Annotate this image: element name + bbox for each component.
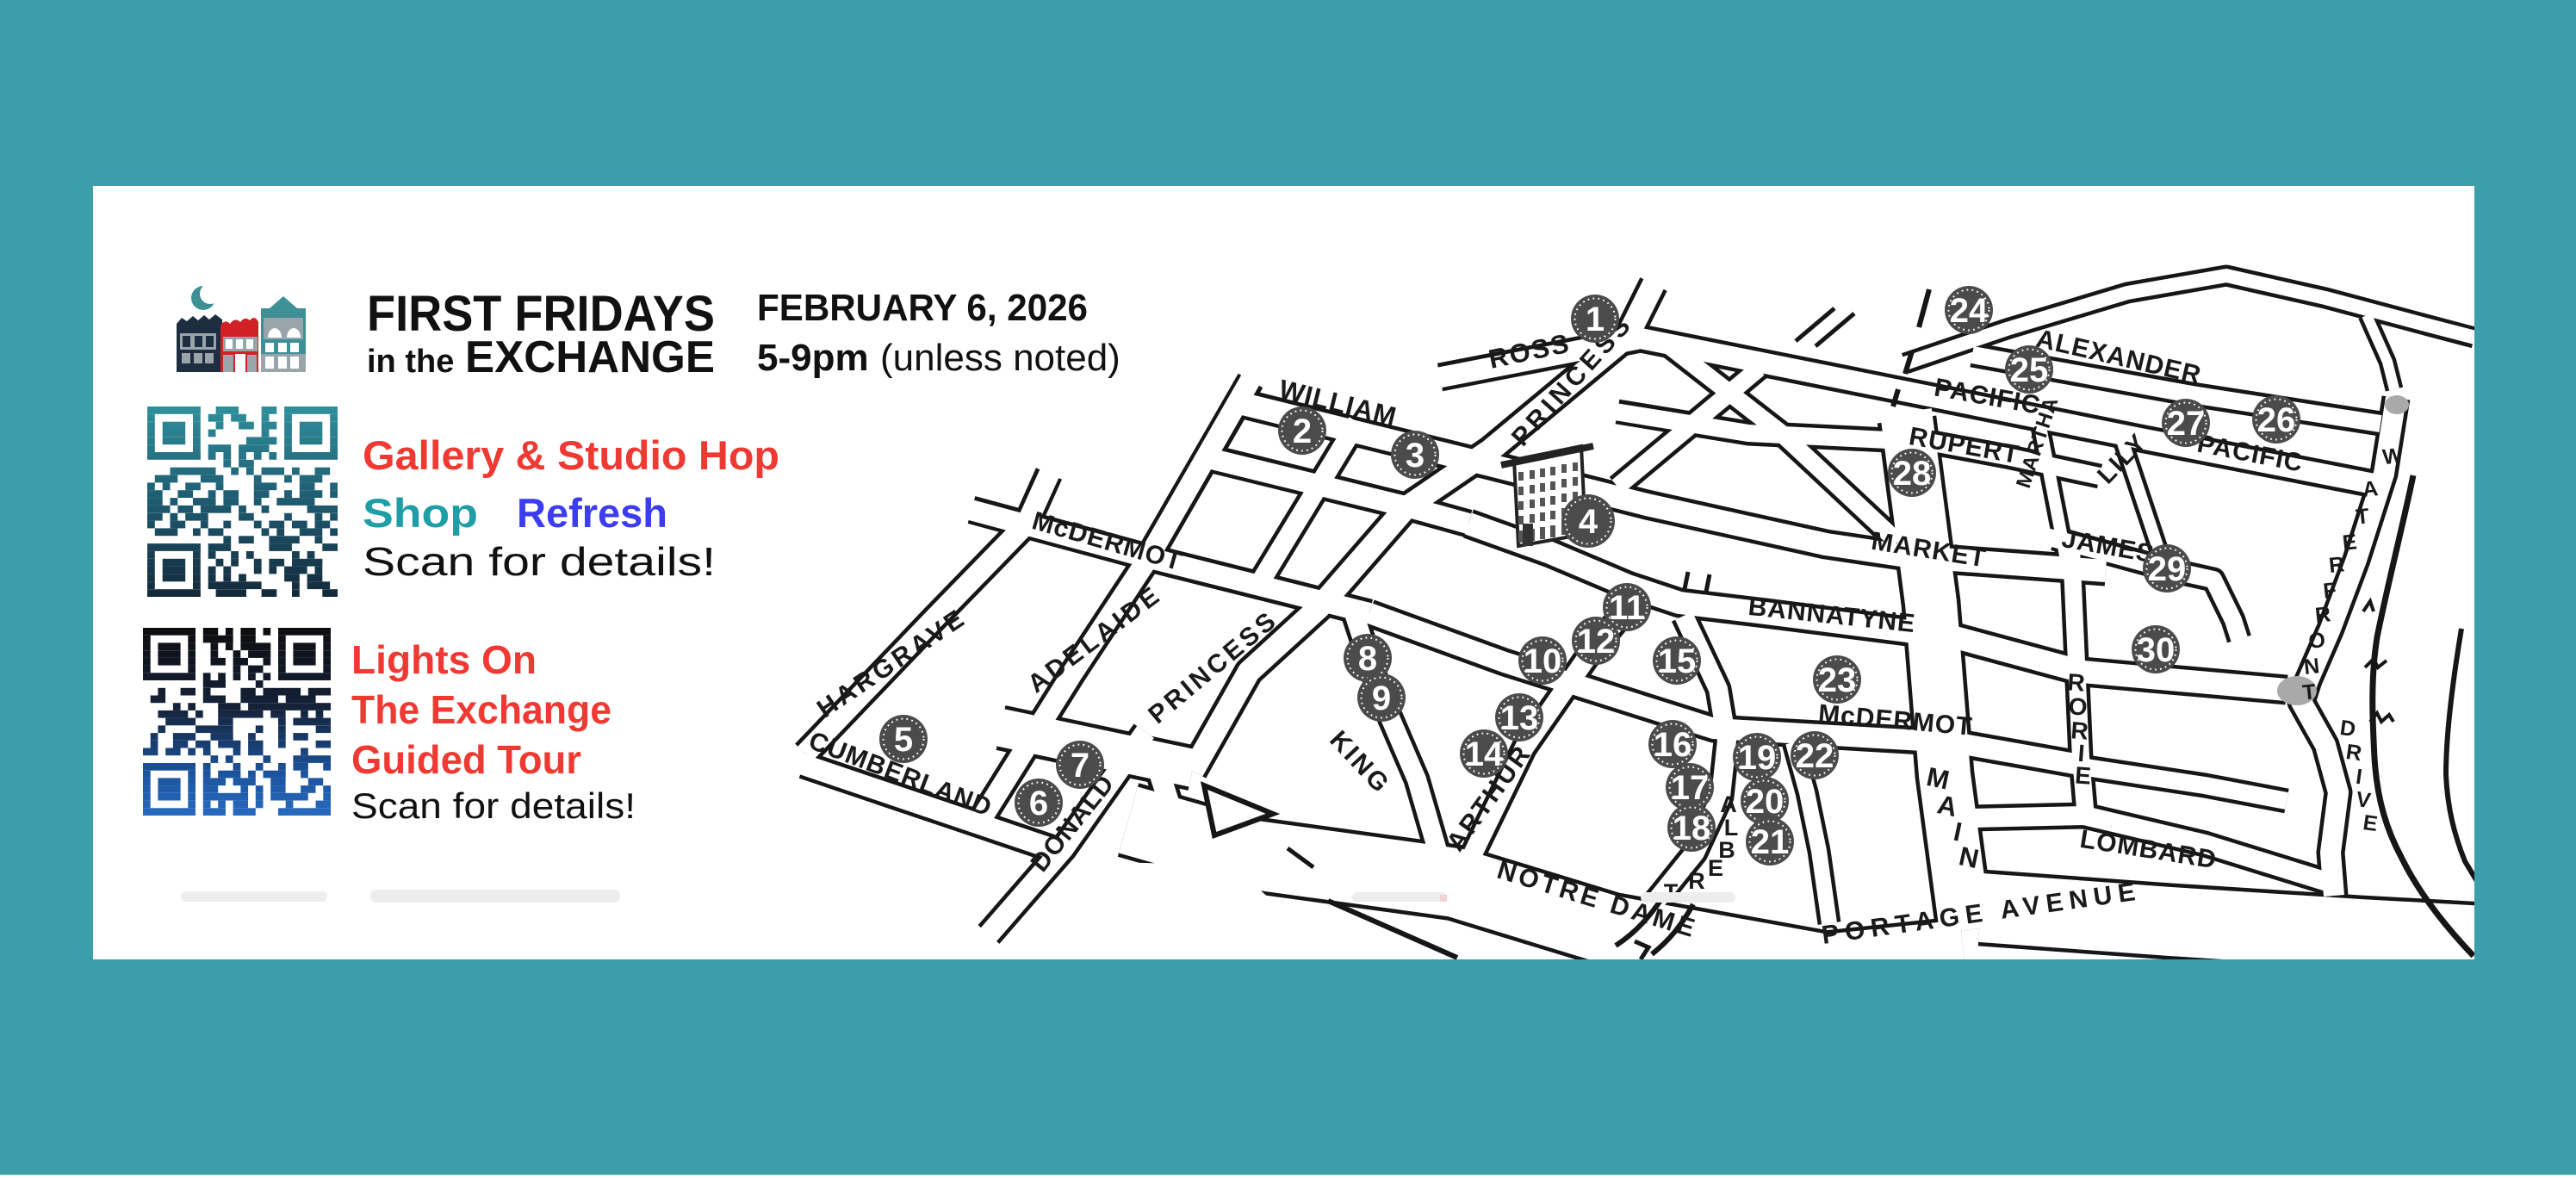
svg-text:1: 1 (1586, 301, 1605, 338)
svg-text:D: D (2338, 716, 2357, 742)
svg-text:E: E (1708, 855, 1723, 881)
svg-text:Shop: Shop (363, 490, 478, 536)
svg-text:Lights On: Lights On (351, 637, 537, 682)
svg-text:14: 14 (1465, 735, 1504, 773)
svg-text:15: 15 (1658, 642, 1697, 680)
svg-text:4: 4 (1579, 503, 1598, 541)
svg-text:5: 5 (894, 721, 913, 759)
svg-text:12: 12 (1577, 623, 1616, 661)
svg-text:The Exchange: The Exchange (351, 687, 611, 732)
svg-text:in the: in the (367, 344, 454, 380)
svg-text:11: 11 (1609, 589, 1645, 627)
svg-text:26: 26 (2257, 401, 2296, 439)
svg-text:17: 17 (1671, 769, 1710, 807)
svg-text:28: 28 (1893, 455, 1932, 493)
svg-text:29: 29 (2148, 550, 2187, 588)
svg-text:3: 3 (1406, 437, 1425, 475)
svg-text:R: R (1688, 868, 1705, 894)
svg-text:EXCHANGE: EXCHANGE (465, 332, 715, 382)
svg-text:Scan for details!: Scan for details! (351, 785, 636, 826)
svg-text:21: 21 (1751, 823, 1790, 861)
svg-text:T: T (2301, 679, 2317, 704)
svg-text:30: 30 (2137, 631, 2176, 669)
svg-text:Guided Tour: Guided Tour (351, 737, 581, 782)
svg-text:27: 27 (2167, 405, 2206, 443)
svg-text:8: 8 (1358, 640, 1377, 678)
svg-text:13: 13 (1500, 699, 1539, 737)
svg-text:A: A (2362, 476, 2380, 502)
svg-text:FEBRUARY 6, 2026: FEBRUARY 6, 2026 (757, 287, 1088, 329)
svg-text:23: 23 (1818, 661, 1857, 699)
svg-text:(unless noted): (unless noted) (880, 337, 1120, 379)
svg-text:16: 16 (1654, 726, 1692, 764)
svg-text:T: T (2355, 504, 2370, 529)
svg-text:E: E (2074, 761, 2092, 789)
svg-text:20: 20 (1746, 783, 1785, 821)
svg-text:Scan for details!: Scan for details! (363, 539, 716, 584)
svg-text:Gallery & Studio Hop: Gallery & Studio Hop (363, 432, 779, 478)
svg-text:18: 18 (1673, 810, 1711, 847)
svg-text:19: 19 (1738, 739, 1777, 777)
svg-text:7: 7 (1071, 747, 1089, 785)
svg-text:R: R (2344, 740, 2363, 766)
svg-text:R: R (2328, 552, 2346, 578)
svg-text:24: 24 (1950, 292, 1989, 330)
svg-text:9: 9 (1372, 679, 1391, 717)
svg-text:W: W (2381, 444, 2405, 469)
svg-text:22: 22 (1796, 737, 1834, 775)
svg-text:E: E (2341, 530, 2358, 555)
svg-text:6: 6 (1029, 785, 1048, 822)
svg-text:O: O (2307, 628, 2326, 654)
svg-text:F: F (2322, 578, 2337, 603)
svg-text:N: N (2303, 654, 2321, 679)
svg-text:R: R (2314, 602, 2332, 628)
svg-text:25: 25 (2010, 351, 2049, 389)
svg-text:Refresh: Refresh (517, 490, 667, 536)
svg-text:5-9pm: 5-9pm (757, 337, 869, 379)
svg-text:A: A (1720, 791, 1737, 817)
svg-text:10: 10 (1524, 642, 1562, 680)
svg-text:2: 2 (1293, 413, 1312, 450)
